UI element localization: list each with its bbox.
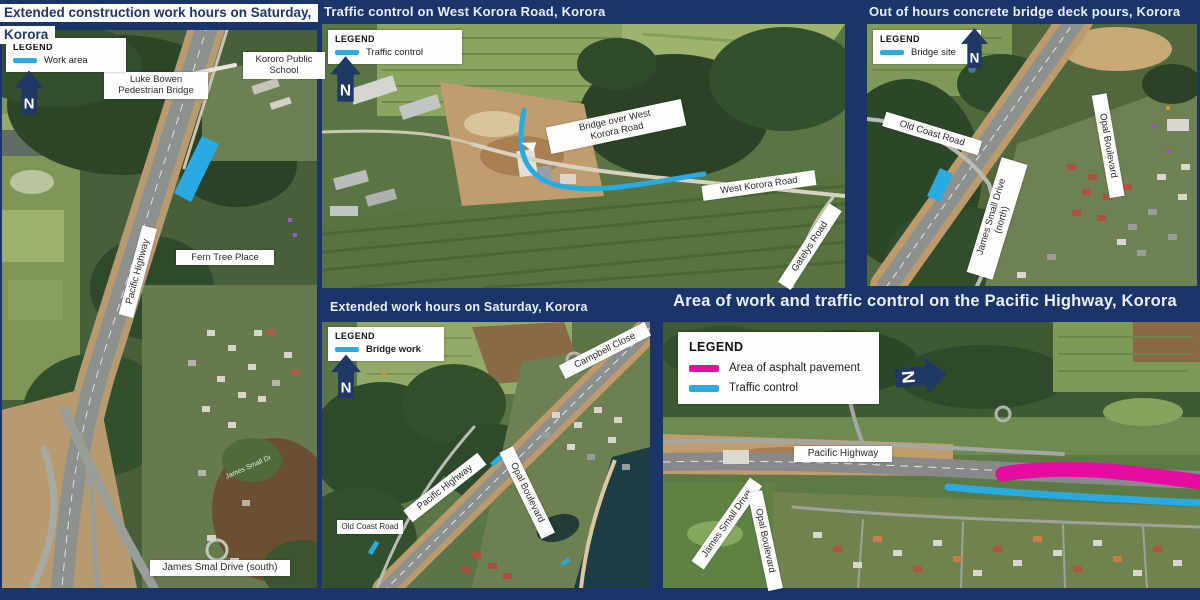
compass-letter: N bbox=[341, 379, 352, 396]
panel5-title: Area of work and traffic control on the … bbox=[665, 292, 1185, 311]
north-arrow-panel5: N bbox=[894, 356, 949, 396]
legend1-item-work-area: Work area bbox=[13, 55, 117, 66]
label-pacific-highway-p5: Pacific Highway bbox=[794, 446, 892, 462]
asphalt-swatch bbox=[689, 365, 719, 372]
map-extended-construction bbox=[2, 30, 317, 588]
label-kororo-public-school: Kororo Public School bbox=[243, 52, 325, 79]
compass-letter: N bbox=[898, 370, 919, 384]
north-arrow-panel4: N bbox=[331, 354, 361, 399]
north-arrow-panel1: N bbox=[14, 70, 44, 115]
compass-letter: N bbox=[24, 95, 35, 112]
legend5-item-asphalt: Area of asphalt pavement bbox=[689, 362, 865, 374]
panel3-title: Out of hours concrete bridge deck pours,… bbox=[869, 4, 1180, 19]
legend1-item-label: Work area bbox=[44, 55, 88, 66]
compass-letter: N bbox=[970, 50, 980, 65]
bridge-work-swatch bbox=[335, 347, 359, 352]
legend-panel5: LEGEND Area of asphalt pavement Traffic … bbox=[678, 332, 879, 404]
legend5-item-asphalt-label: Area of asphalt pavement bbox=[729, 362, 860, 374]
legend3-item-label: Bridge site bbox=[911, 47, 956, 58]
legend5-item-traffic: Traffic control bbox=[689, 382, 865, 394]
legend2-title: LEGEND bbox=[335, 34, 453, 44]
legend5-item-traffic-label: Traffic control bbox=[729, 382, 798, 394]
legend4-item-label: Bridge work bbox=[366, 344, 421, 355]
label-james-smal-drive-south: James Smal Drive (south) bbox=[150, 560, 290, 576]
legend3-title: LEGEND bbox=[880, 34, 972, 44]
panel1-title: Extended construction work hours on Satu… bbox=[0, 2, 318, 47]
legend2-item-label: Traffic control bbox=[366, 47, 423, 58]
panel1-title-line2: Korora bbox=[0, 26, 55, 44]
legend4-title: LEGEND bbox=[335, 331, 435, 341]
panel4-title: Extended work hours on Saturday, Korora bbox=[330, 300, 588, 314]
label-old-coast-road-p4: Old Coast Road bbox=[337, 520, 403, 534]
legend5-title: LEGEND bbox=[689, 340, 865, 354]
infographic-canvas: Extended construction work hours on Satu… bbox=[0, 0, 1200, 600]
north-arrow-panel3: N bbox=[961, 28, 988, 68]
bridge-site-swatch bbox=[880, 50, 904, 55]
compass-letter: N bbox=[340, 82, 351, 99]
panel2-title: Traffic control on West Korora Road, Kor… bbox=[324, 4, 605, 19]
panel1-title-line1: Extended construction work hours on Satu… bbox=[0, 4, 318, 22]
north-arrow-panel2: N bbox=[330, 56, 361, 102]
label-fern-tree-place: Fern Tree Place bbox=[176, 250, 274, 265]
label-luke-bowen-bridge: Luke Bowen Pedestrian Bridge bbox=[104, 72, 208, 99]
work-area-swatch bbox=[13, 58, 37, 63]
legend3-item-bridge-site: Bridge site bbox=[880, 47, 972, 58]
traffic-swatch-p5 bbox=[689, 385, 719, 392]
traffic-control-swatch bbox=[335, 50, 359, 55]
map-extended-work-hours bbox=[322, 322, 650, 588]
